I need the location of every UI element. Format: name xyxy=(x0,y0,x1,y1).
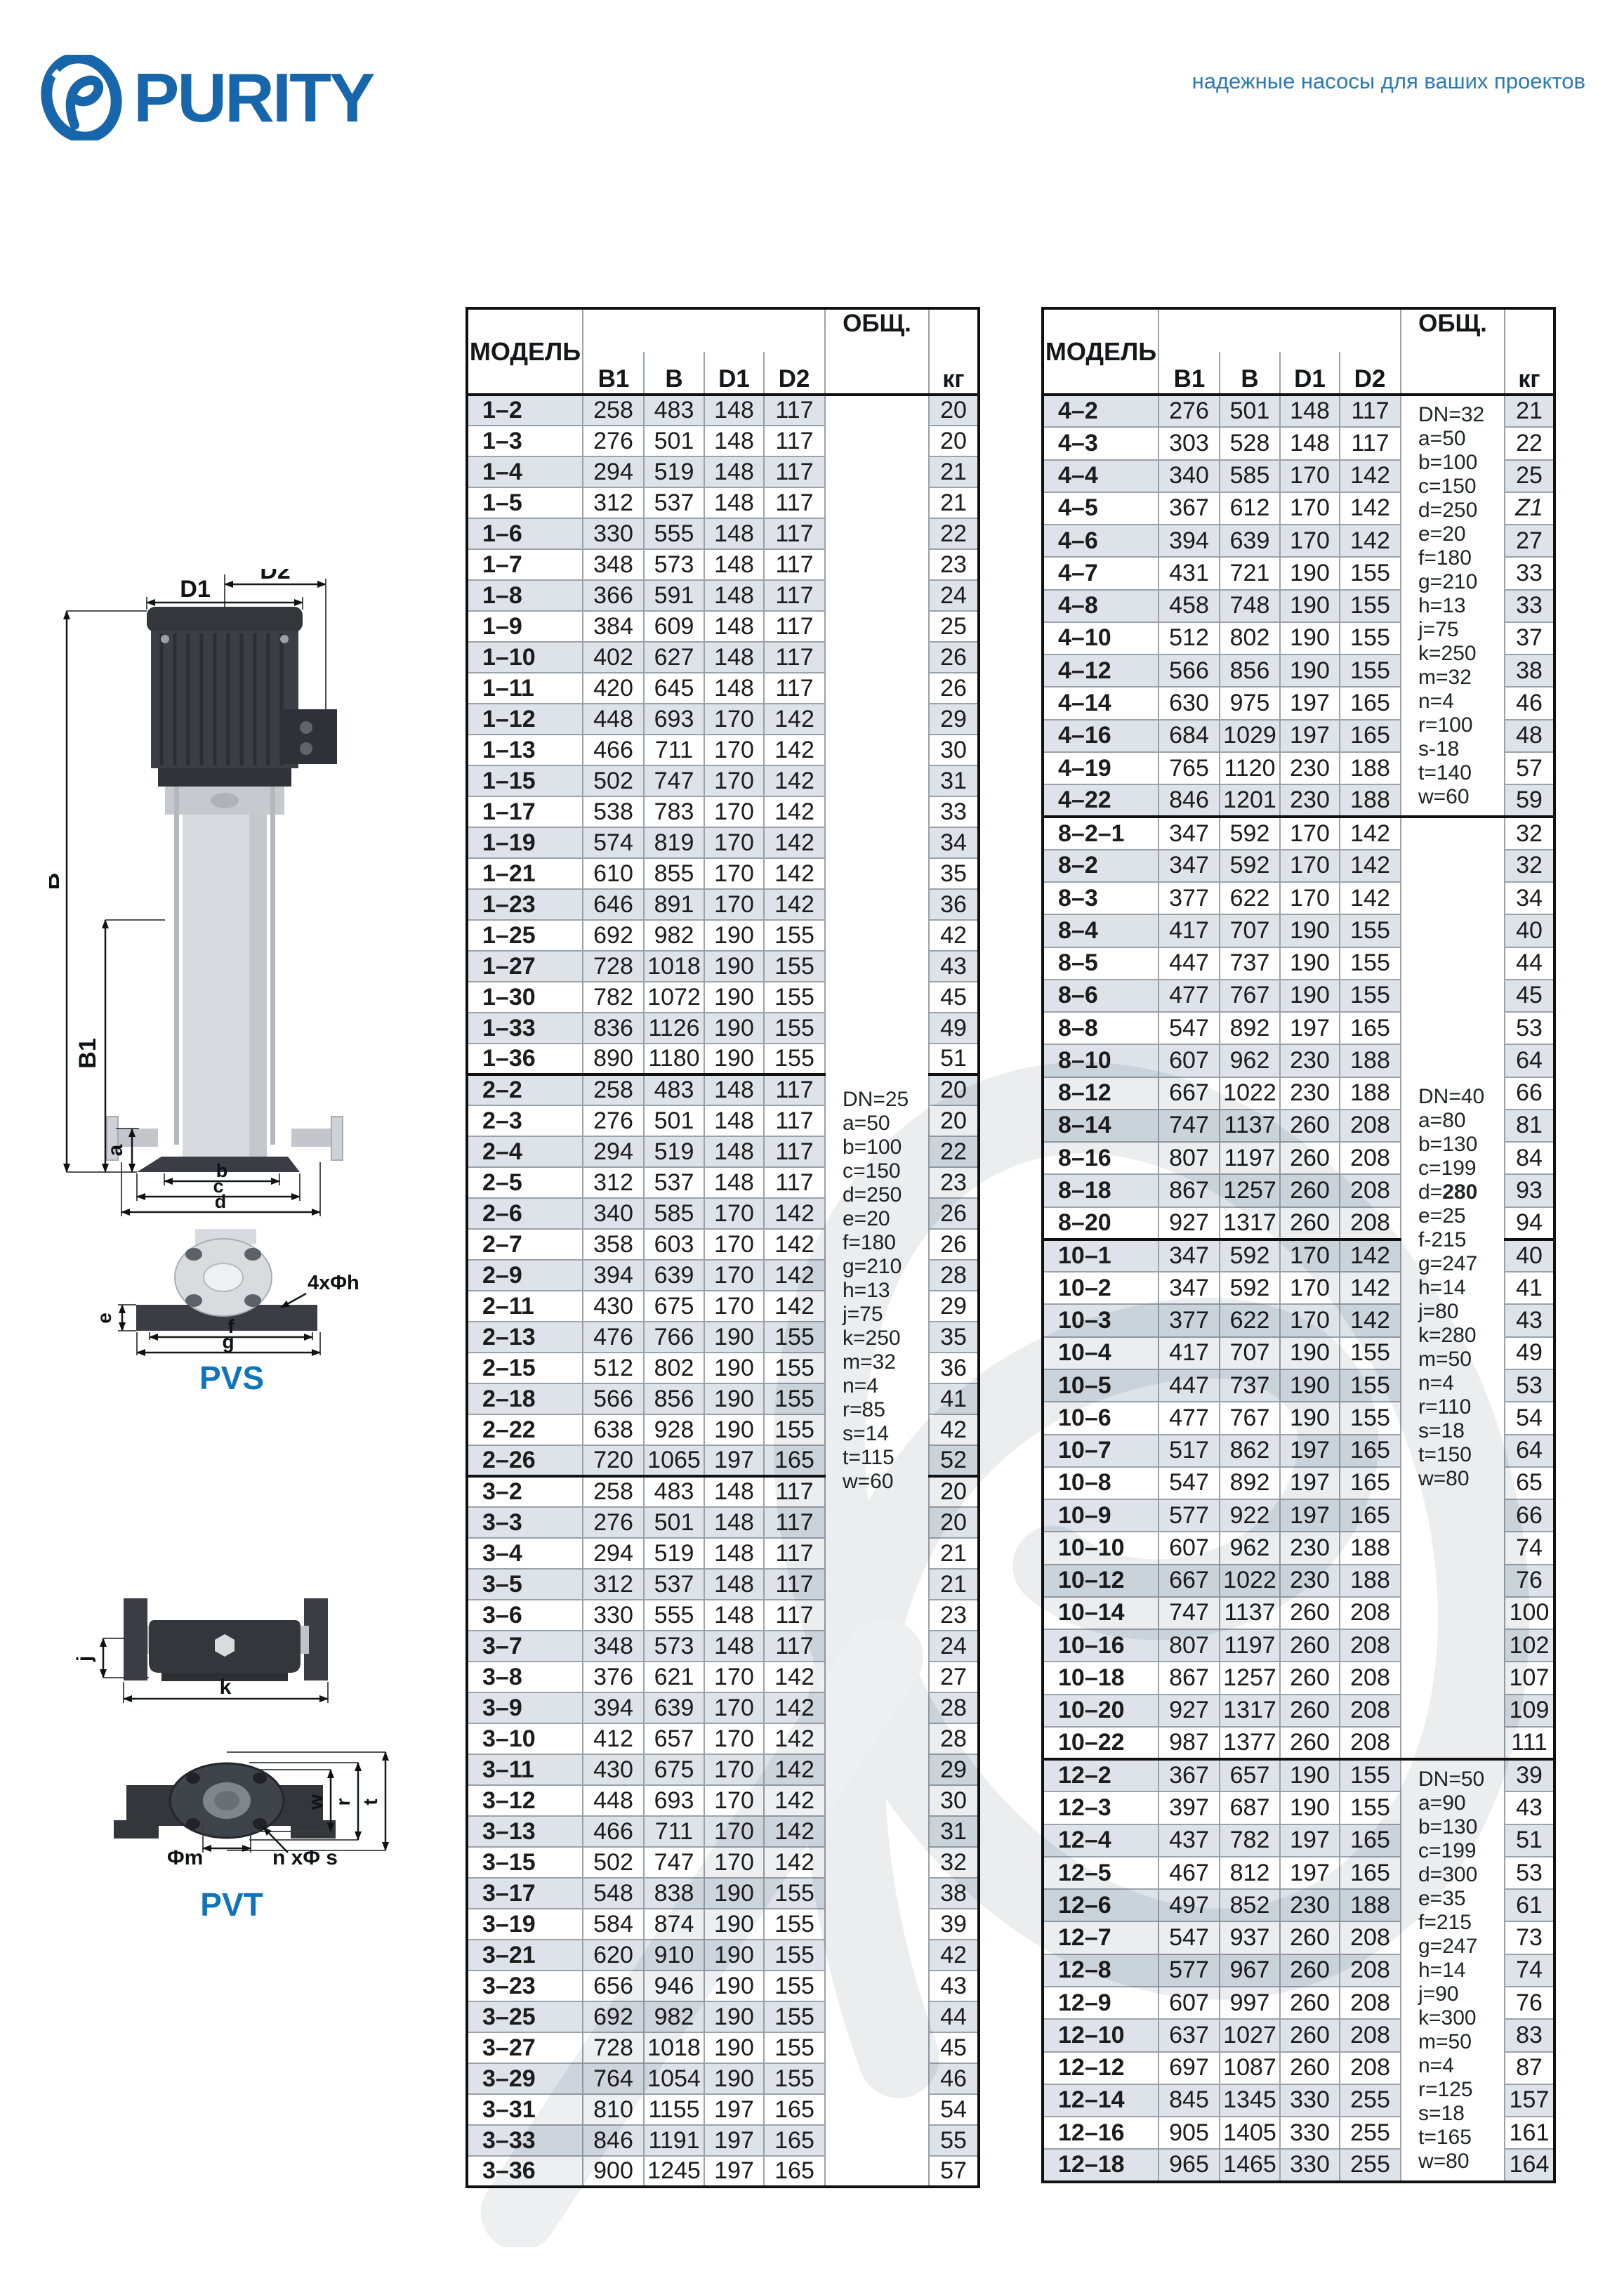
b1-cell: 276 xyxy=(583,1507,644,1538)
d2-cell: 155 xyxy=(764,2001,825,2032)
d1-cell: 148 xyxy=(704,1136,764,1167)
d1-cell: 190 xyxy=(704,1414,764,1445)
b-cell: 693 xyxy=(644,1785,704,1816)
model-cell: 12–14 xyxy=(1043,2084,1158,2117)
b-cell: 537 xyxy=(644,487,704,518)
d1-cell: 148 xyxy=(704,1167,764,1198)
pvs-dimension-drawing: D2 D1 xyxy=(49,569,400,1218)
b1-cell: 347 xyxy=(1158,850,1220,882)
b1-cell: 366 xyxy=(583,580,644,611)
dim-label-B: B xyxy=(49,873,65,890)
b1-cell: 477 xyxy=(1158,980,1220,1012)
model-cell: 10–2 xyxy=(1043,1272,1158,1304)
d2-cell: 117 xyxy=(1340,427,1401,459)
kg-cell: 24 xyxy=(929,580,979,611)
d2-cell: 155 xyxy=(764,2063,825,2094)
b-cell: 997 xyxy=(1220,1987,1280,2019)
kg-cell: 28 xyxy=(929,1692,979,1723)
d2-cell: 117 xyxy=(764,580,825,611)
d2-cell: 142 xyxy=(764,1229,825,1260)
model-cell: 3–5 xyxy=(467,1569,583,1600)
model-cell: 3–31 xyxy=(467,2094,583,2125)
d2-cell: 117 xyxy=(1340,395,1401,427)
kg-cell: 30 xyxy=(929,1785,979,1816)
kg-cell: 23 xyxy=(929,549,979,580)
model-cell: 1–11 xyxy=(467,673,583,704)
d2-cell: 155 xyxy=(764,1383,825,1414)
d2-cell: 142 xyxy=(764,1816,825,1847)
d2-cell: 155 xyxy=(1340,1369,1401,1402)
d2-cell: 188 xyxy=(1340,752,1401,784)
b1-cell: 258 xyxy=(583,1074,644,1105)
b1-cell: 574 xyxy=(583,827,644,858)
kg-cell: 42 xyxy=(929,1414,979,1445)
model-cell: 1–3 xyxy=(467,426,583,456)
kg-cell: 57 xyxy=(929,2156,979,2187)
d1-cell: 148 xyxy=(704,1476,764,1507)
b-cell: 967 xyxy=(1220,1954,1280,1987)
b-cell: 838 xyxy=(644,1878,704,1909)
model-cell: 12–18 xyxy=(1043,2149,1158,2181)
d1-cell: 190 xyxy=(1280,980,1340,1012)
d1-cell: 148 xyxy=(704,1105,764,1136)
b1-cell: 448 xyxy=(583,704,644,735)
b-cell: 928 xyxy=(644,1414,704,1445)
b1-cell: 566 xyxy=(1158,654,1220,687)
b-cell: 528 xyxy=(1220,427,1280,459)
b-cell: 592 xyxy=(1220,1239,1280,1272)
d1-cell: 190 xyxy=(704,920,764,951)
model-cell: 4–2 xyxy=(1043,395,1158,427)
model-cell: 3–9 xyxy=(467,1692,583,1723)
d1-cell: 170 xyxy=(704,796,764,827)
d2-cell: 155 xyxy=(764,1044,825,1074)
model-cell: 3–23 xyxy=(467,1971,583,2001)
d1-cell: 197 xyxy=(1280,1824,1340,1857)
d2-cell: 188 xyxy=(1340,1044,1401,1077)
d1-cell: 170 xyxy=(1280,882,1340,914)
col-header-obshch: ОБЩ. xyxy=(825,308,929,395)
b-cell: 1120 xyxy=(1220,752,1280,784)
b-cell: 737 xyxy=(1220,947,1280,980)
d2-cell: 142 xyxy=(1340,882,1401,914)
d2-cell: 117 xyxy=(764,1631,825,1662)
model-cell: 2–2 xyxy=(467,1074,583,1105)
kg-cell: 46 xyxy=(929,2063,979,2094)
kg-cell: 26 xyxy=(929,1198,979,1229)
kg-cell: 38 xyxy=(1505,654,1554,687)
b-cell: 1022 xyxy=(1220,1565,1280,1597)
model-cell: 1–2 xyxy=(467,395,583,426)
d2-cell: 165 xyxy=(1340,687,1401,719)
kg-cell: 49 xyxy=(1505,1337,1554,1369)
model-cell: 12–4 xyxy=(1043,1824,1158,1857)
dim-label-d: d xyxy=(215,1191,227,1212)
b-cell: 1018 xyxy=(644,951,704,982)
d1-cell: 190 xyxy=(704,2032,764,2063)
b-cell: 721 xyxy=(1220,557,1280,589)
pvs-label: PVS xyxy=(169,1359,295,1397)
kg-cell: 32 xyxy=(1505,850,1554,882)
d2-cell: 208 xyxy=(1340,1695,1401,1727)
b-cell: 711 xyxy=(644,735,704,765)
d1-cell: 170 xyxy=(1280,460,1340,492)
d2-cell: 155 xyxy=(1340,947,1401,980)
table-row: 1–2258483148117DN=25a=50b=100c=150d=250e… xyxy=(467,395,979,426)
model-cell: 1–5 xyxy=(467,487,583,518)
b-cell: 537 xyxy=(644,1569,704,1600)
d1-cell: 190 xyxy=(704,1971,764,2001)
b-cell: 962 xyxy=(1220,1044,1280,1077)
d1-cell: 148 xyxy=(704,456,764,487)
kg-cell: 55 xyxy=(929,2125,979,2156)
model-cell: 3–6 xyxy=(467,1600,583,1631)
d1-cell: 197 xyxy=(704,2125,764,2156)
model-cell: 4–4 xyxy=(1043,460,1158,492)
b1-cell: 384 xyxy=(583,611,644,642)
b1-cell: 517 xyxy=(1158,1435,1220,1467)
b-cell: 555 xyxy=(644,518,704,549)
model-cell: 2–22 xyxy=(467,1414,583,1445)
b-cell: 675 xyxy=(644,1291,704,1322)
dim-label-d2: D2 xyxy=(260,569,290,584)
b-cell: 892 xyxy=(1220,1467,1280,1499)
kg-cell: 36 xyxy=(929,889,979,920)
b1-cell: 347 xyxy=(1158,1272,1220,1304)
kg-cell: 33 xyxy=(1505,557,1554,589)
kg-cell: 34 xyxy=(1505,882,1554,914)
b1-cell: 927 xyxy=(1158,1695,1220,1727)
kg-cell: 21 xyxy=(929,1538,979,1569)
b-cell: 1245 xyxy=(644,2156,704,2187)
kg-cell: 93 xyxy=(1505,1174,1554,1206)
b1-cell: 294 xyxy=(583,456,644,487)
d1-cell: 197 xyxy=(704,2094,764,2125)
kg-cell: 30 xyxy=(929,735,979,765)
d2-cell: 117 xyxy=(764,549,825,580)
kg-cell: Z1 xyxy=(1505,492,1554,525)
model-cell: 2–3 xyxy=(467,1105,583,1136)
b1-cell: 430 xyxy=(583,1291,644,1322)
b-cell: 519 xyxy=(644,1538,704,1569)
kg-cell: 49 xyxy=(929,1013,979,1044)
model-cell: 3–13 xyxy=(467,1816,583,1847)
b-cell: 892 xyxy=(1220,1012,1280,1044)
d2-cell: 208 xyxy=(1340,1597,1401,1629)
d2-cell: 165 xyxy=(1340,1467,1401,1499)
d2-cell: 155 xyxy=(1340,557,1401,589)
d2-cell: 142 xyxy=(764,1291,825,1322)
d2-cell: 188 xyxy=(1340,1565,1401,1597)
kg-cell: 48 xyxy=(1505,720,1554,752)
col-header-model: МОДЕЛЬ xyxy=(1043,308,1158,395)
d2-cell: 117 xyxy=(764,1538,825,1569)
b1-cell: 467 xyxy=(1158,1857,1220,1889)
b1-cell: 347 xyxy=(1158,817,1220,849)
d2-cell: 208 xyxy=(1340,1174,1401,1206)
d1-cell: 170 xyxy=(1280,492,1340,525)
obshch-notes-cell: DN=40a=80b=130c=199d=280e=25f-215g=247h=… xyxy=(1401,817,1505,1759)
b1-cell: 782 xyxy=(583,982,644,1013)
b-cell: 657 xyxy=(644,1723,704,1754)
b-cell: 687 xyxy=(1220,1791,1280,1824)
b-cell: 1345 xyxy=(1220,2084,1280,2117)
b1-cell: 807 xyxy=(1158,1142,1220,1174)
kg-cell: 52 xyxy=(929,1445,979,1476)
b-cell: 609 xyxy=(644,611,704,642)
kg-cell: 26 xyxy=(929,673,979,704)
b-cell: 585 xyxy=(644,1198,704,1229)
b-cell: 1197 xyxy=(1220,1629,1280,1662)
table-row: 8–2–1347592170142DN=40a=80b=130c=199d=28… xyxy=(1043,817,1554,849)
d1-cell: 148 xyxy=(704,487,764,518)
d2-cell: 155 xyxy=(764,1414,825,1445)
d2-cell: 155 xyxy=(764,1909,825,1940)
model-cell: 8–12 xyxy=(1043,1077,1158,1110)
d1-cell: 190 xyxy=(704,1013,764,1044)
b-cell: 537 xyxy=(644,1167,704,1198)
b1-cell: 547 xyxy=(1158,1921,1220,1954)
d2-cell: 117 xyxy=(764,642,825,673)
d2-cell: 165 xyxy=(1340,1824,1401,1857)
d2-cell: 155 xyxy=(1340,1791,1401,1824)
b1-cell: 867 xyxy=(1158,1662,1220,1694)
model-cell: 8–2 xyxy=(1043,850,1158,882)
b1-cell: 607 xyxy=(1158,1987,1220,2019)
b-cell: 982 xyxy=(644,2001,704,2032)
kg-cell: 22 xyxy=(1505,427,1554,459)
model-cell: 8–3 xyxy=(1043,882,1158,914)
d2-cell: 142 xyxy=(764,1260,825,1291)
b-cell: 874 xyxy=(644,1909,704,1940)
kg-cell: 73 xyxy=(1505,1921,1554,1954)
kg-cell: 66 xyxy=(1505,1499,1554,1532)
d2-cell: 117 xyxy=(764,518,825,549)
kg-cell: 29 xyxy=(929,704,979,735)
b1-cell: 630 xyxy=(1158,687,1220,719)
d1-cell: 170 xyxy=(704,1754,764,1785)
model-cell: 1–13 xyxy=(467,735,583,765)
col-header-b: B xyxy=(644,308,704,395)
d1-cell: 148 xyxy=(704,1074,764,1105)
d1-cell: 170 xyxy=(1280,1272,1340,1304)
d1-cell: 260 xyxy=(1280,1727,1340,1759)
dim-label-ns: n xΦ s xyxy=(272,1846,338,1869)
d2-cell: 165 xyxy=(764,2094,825,2125)
b1-cell: 394 xyxy=(583,1260,644,1291)
b-cell: 1137 xyxy=(1220,1110,1280,1142)
b1-cell: 584 xyxy=(583,1909,644,1940)
d1-cell: 190 xyxy=(704,1878,764,1909)
model-cell: 8–20 xyxy=(1043,1207,1158,1239)
d2-cell: 155 xyxy=(1340,590,1401,622)
b1-cell: 538 xyxy=(583,796,644,827)
b-cell: 962 xyxy=(1220,1532,1280,1564)
b-cell: 693 xyxy=(644,704,704,735)
b1-cell: 447 xyxy=(1158,947,1220,980)
model-cell: 10–14 xyxy=(1043,1597,1158,1629)
d1-cell: 148 xyxy=(704,1631,764,1662)
d1-cell: 170 xyxy=(704,1260,764,1291)
d1-cell: 170 xyxy=(704,1816,764,1847)
b-cell: 748 xyxy=(1220,590,1280,622)
model-cell: 12–16 xyxy=(1043,2117,1158,2149)
d2-cell: 142 xyxy=(764,1692,825,1723)
model-cell: 3–29 xyxy=(467,2063,583,2094)
model-cell: 4–14 xyxy=(1043,687,1158,719)
d1-cell: 190 xyxy=(1280,947,1340,980)
model-cell: 1–6 xyxy=(467,518,583,549)
model-cell: 4–12 xyxy=(1043,654,1158,687)
b-cell: 519 xyxy=(644,456,704,487)
b1-cell: 276 xyxy=(1158,395,1220,427)
model-cell: 10–4 xyxy=(1043,1337,1158,1369)
col-header-d2: D2 xyxy=(1340,308,1401,395)
d1-cell: 170 xyxy=(1280,1304,1340,1336)
b-cell: 555 xyxy=(644,1600,704,1631)
kg-cell: 43 xyxy=(929,951,979,982)
model-cell: 3–11 xyxy=(467,1754,583,1785)
kg-cell: 24 xyxy=(929,1631,979,1662)
kg-cell: 22 xyxy=(929,518,979,549)
d2-cell: 142 xyxy=(764,735,825,765)
b1-cell: 358 xyxy=(583,1229,644,1260)
d1-cell: 260 xyxy=(1280,1921,1340,1954)
model-cell: 8–2–1 xyxy=(1043,817,1158,849)
d2-cell: 255 xyxy=(1340,2149,1401,2181)
b-cell: 782 xyxy=(1220,1824,1280,1857)
kg-cell: 34 xyxy=(929,827,979,858)
obshch-notes-cell: DN=50a=90b=130c=199d=300e=35f=215g=247h=… xyxy=(1401,1759,1505,2181)
model-cell: 1–25 xyxy=(467,920,583,951)
model-cell: 3–2 xyxy=(467,1476,583,1507)
d1-cell: 230 xyxy=(1280,752,1340,784)
kg-cell: 40 xyxy=(1505,1239,1554,1272)
b-cell: 1405 xyxy=(1220,2117,1280,2149)
d2-cell: 155 xyxy=(764,982,825,1013)
dim-label-k: k xyxy=(220,1676,232,1699)
model-cell: 4–22 xyxy=(1043,784,1158,817)
b1-cell: 377 xyxy=(1158,882,1220,914)
d1-cell: 170 xyxy=(704,1723,764,1754)
b-cell: 812 xyxy=(1220,1857,1280,1889)
col-header-b1: B1 xyxy=(1158,308,1220,395)
model-cell: 10–22 xyxy=(1043,1727,1158,1759)
d2-cell: 165 xyxy=(764,2125,825,2156)
b1-cell: 377 xyxy=(1158,1304,1220,1336)
kg-cell: 51 xyxy=(1505,1824,1554,1857)
d2-cell: 142 xyxy=(1340,1272,1401,1304)
d1-cell: 197 xyxy=(1280,1435,1340,1467)
b-cell: 766 xyxy=(644,1322,704,1353)
b1-cell: 497 xyxy=(1158,1889,1220,1921)
b-cell: 910 xyxy=(644,1940,704,1971)
b1-cell: 566 xyxy=(583,1383,644,1414)
d1-cell: 230 xyxy=(1280,1889,1340,1921)
d2-cell: 155 xyxy=(1340,914,1401,947)
b1-cell: 620 xyxy=(583,1940,644,1971)
kg-cell: 29 xyxy=(929,1754,979,1785)
d1-cell: 190 xyxy=(1280,1402,1340,1434)
dim-label-j: j xyxy=(73,1656,96,1662)
d2-cell: 117 xyxy=(764,426,825,456)
b1-cell: 692 xyxy=(583,920,644,951)
d1-cell: 190 xyxy=(1280,1759,1340,1791)
b-cell: 1022 xyxy=(1220,1077,1280,1110)
d2-cell: 155 xyxy=(1340,1337,1401,1369)
b-cell: 1018 xyxy=(644,2032,704,2063)
b-cell: 612 xyxy=(1220,492,1280,525)
b-cell: 982 xyxy=(644,920,704,951)
d2-cell: 142 xyxy=(764,796,825,827)
b1-cell: 430 xyxy=(583,1754,644,1785)
model-cell: 3–10 xyxy=(467,1723,583,1754)
b-cell: 1377 xyxy=(1220,1727,1280,1759)
model-cell: 4–3 xyxy=(1043,427,1158,459)
b1-cell: 987 xyxy=(1158,1727,1220,1759)
kg-cell: 61 xyxy=(1505,1889,1554,1921)
d1-cell: 148 xyxy=(704,642,764,673)
d1-cell: 148 xyxy=(704,1600,764,1631)
d1-cell: 148 xyxy=(704,611,764,642)
d2-cell: 142 xyxy=(764,1723,825,1754)
b-cell: 937 xyxy=(1220,1921,1280,1954)
kg-cell: 41 xyxy=(929,1383,979,1414)
d2-cell: 188 xyxy=(1340,1077,1401,1110)
kg-cell: 53 xyxy=(1505,1857,1554,1889)
col-header-kg: кг xyxy=(929,308,979,395)
d2-cell: 255 xyxy=(1340,2084,1401,2117)
b1-cell: 512 xyxy=(1158,622,1220,654)
kg-cell: 111 xyxy=(1505,1727,1554,1759)
b-cell: 819 xyxy=(644,827,704,858)
b1-cell: 431 xyxy=(1158,557,1220,589)
kg-cell: 36 xyxy=(929,1353,979,1383)
d2-cell: 117 xyxy=(764,456,825,487)
model-cell: 3–3 xyxy=(467,1507,583,1538)
d2-cell: 208 xyxy=(1340,1207,1401,1239)
model-cell: 1–21 xyxy=(467,858,583,889)
table-row: 4–2276501148117DN=32a=50b=100c=150d=250e… xyxy=(1043,395,1554,427)
b1-cell: 905 xyxy=(1158,2117,1220,2149)
model-cell: 1–17 xyxy=(467,796,583,827)
model-cell: 4–10 xyxy=(1043,622,1158,654)
kg-cell: 35 xyxy=(929,858,979,889)
kg-cell: 28 xyxy=(929,1723,979,1754)
d1-cell: 190 xyxy=(1280,590,1340,622)
b1-cell: 340 xyxy=(583,1198,644,1229)
d2-cell: 188 xyxy=(1340,784,1401,817)
b1-cell: 397 xyxy=(1158,1791,1220,1824)
d2-cell: 165 xyxy=(1340,1857,1401,1889)
kg-cell: 83 xyxy=(1505,2019,1554,2051)
b-cell: 747 xyxy=(644,765,704,796)
d1-cell: 190 xyxy=(1280,914,1340,947)
b1-cell: 394 xyxy=(1158,525,1220,557)
b1-cell: 667 xyxy=(1158,1077,1220,1110)
model-cell: 12–2 xyxy=(1043,1759,1158,1791)
model-cell: 10–16 xyxy=(1043,1629,1158,1662)
model-cell: 8–14 xyxy=(1043,1110,1158,1142)
kg-cell: 109 xyxy=(1505,1695,1554,1727)
b1-cell: 637 xyxy=(1158,2019,1220,2051)
pvt-flange-view: w r t Φm n xΦ s xyxy=(49,1742,414,1882)
model-cell: 2–7 xyxy=(467,1229,583,1260)
d1-cell: 170 xyxy=(704,1229,764,1260)
b-cell: 603 xyxy=(644,1229,704,1260)
kg-cell: 21 xyxy=(929,1569,979,1600)
b-cell: 767 xyxy=(1220,1402,1280,1434)
